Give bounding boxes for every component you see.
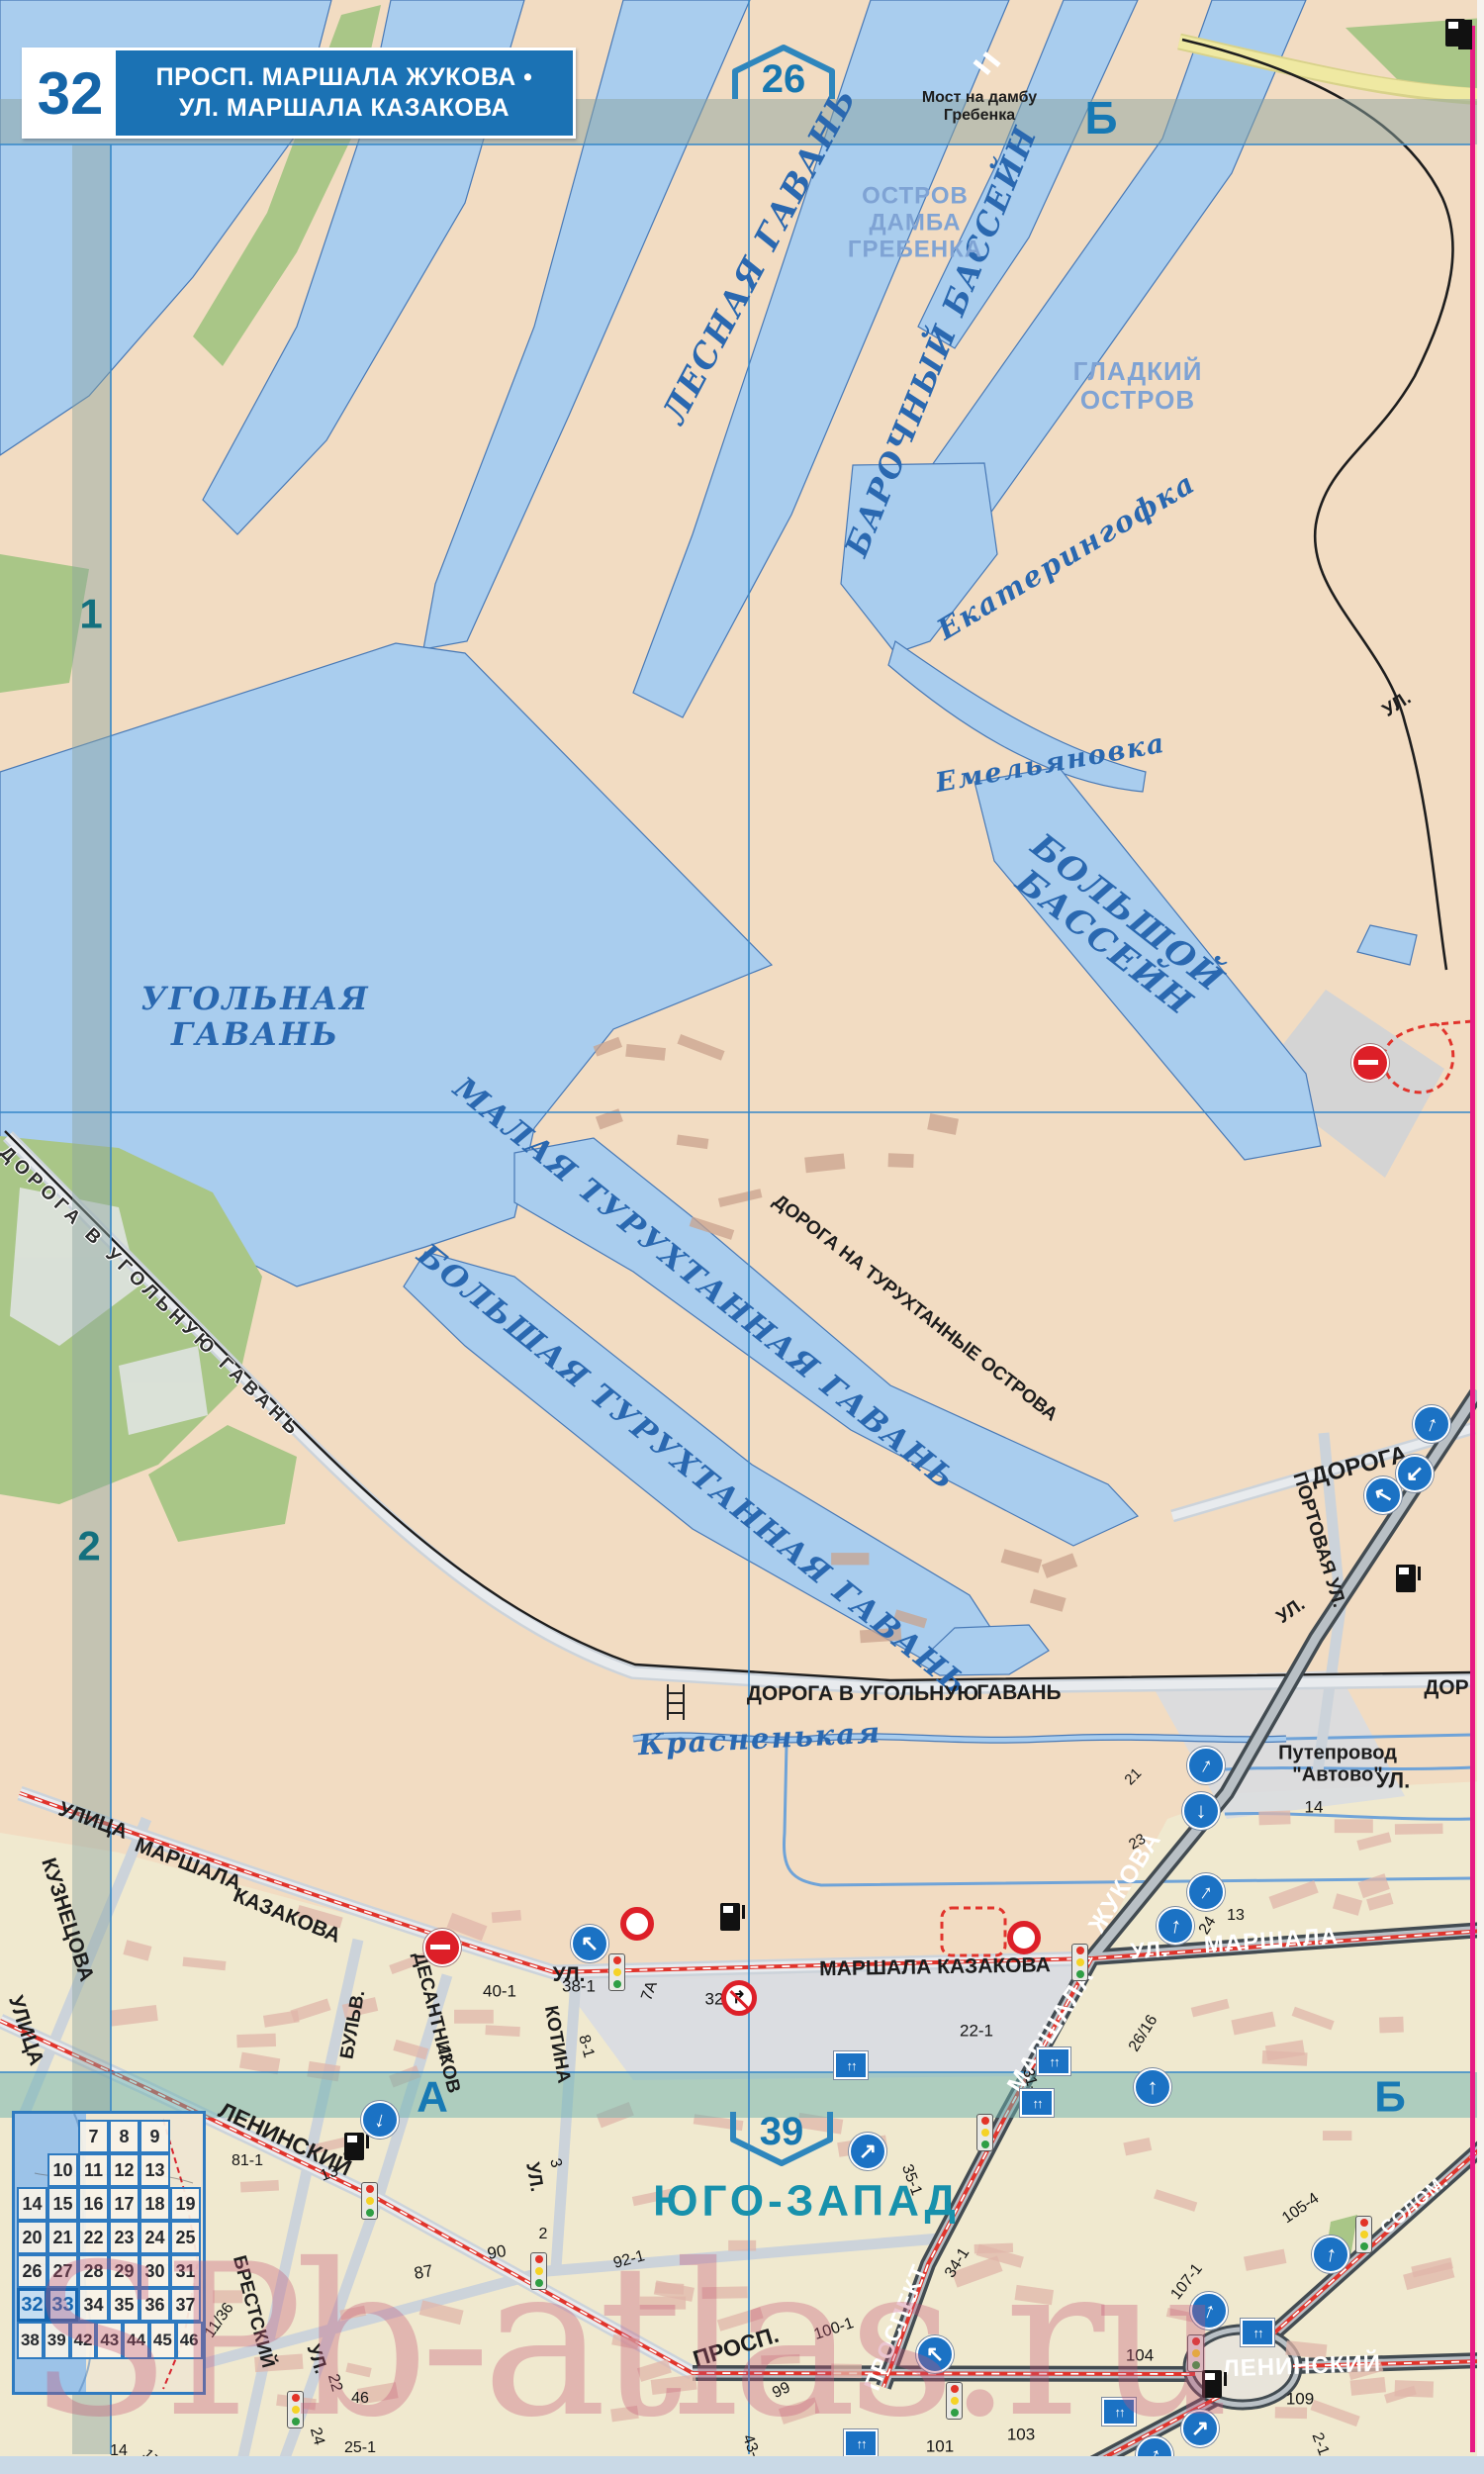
- road-sign-direction-icon: ↓: [1182, 1792, 1220, 1830]
- index-cell-9: 9: [139, 2120, 170, 2153]
- lane-sign-icon: ↑↑: [834, 2051, 868, 2079]
- prohibition-sign-icon: [620, 1907, 654, 1941]
- cut-gas-station-icon: [1458, 20, 1472, 49]
- page-title-line2: УЛ. МАРШАЛА КАЗАКОВА: [179, 93, 510, 124]
- road-sign-direction-icon: ↖: [571, 1925, 608, 1962]
- index-cell-empty: [170, 2120, 201, 2153]
- road-sign-direction-icon: ↑: [1134, 2068, 1171, 2106]
- road-sign-direction-icon: ↖: [1364, 1476, 1402, 1514]
- index-cell-14: 14: [17, 2187, 47, 2221]
- page-link-number: 26: [727, 57, 840, 102]
- traffic-light-icon: [608, 1953, 625, 1991]
- road-sign-direction-icon: ↑: [1413, 1405, 1450, 1443]
- page-title-line1: ПРОСП. МАРШАЛА ЖУКОВА •: [156, 62, 533, 93]
- index-cell-7: 7: [78, 2120, 109, 2153]
- page-margin-right: [1477, 0, 1484, 2474]
- index-cell-19: 19: [170, 2187, 201, 2221]
- index-cell-18: 18: [139, 2187, 170, 2221]
- index-cell-10: 10: [47, 2153, 78, 2187]
- index-cell-empty: [17, 2120, 47, 2153]
- lane-sign-icon: ↑↑: [1037, 2047, 1070, 2075]
- page-edge-line: [1470, 26, 1475, 2452]
- road-sign-direction-icon: ↗: [849, 2133, 886, 2170]
- page-link-badge-up: 26: [727, 42, 840, 105]
- gas-station-icon: [720, 1903, 740, 1931]
- gas-station-icon: [344, 2133, 364, 2160]
- page-link-number: 39: [725, 2110, 838, 2154]
- road-sign-direction-icon: ↙: [1396, 1455, 1434, 1492]
- lane-sign-icon: ↑↑: [1020, 2089, 1054, 2117]
- page-link-badge-down: 39: [725, 2106, 838, 2169]
- map-canvas: [0, 0, 1484, 2474]
- road-sign-direction-icon: ↓: [361, 2101, 399, 2139]
- traffic-light-icon: [361, 2182, 378, 2220]
- prohibition-sign-icon: [1007, 1921, 1041, 1954]
- traffic-light-icon: [1071, 1944, 1088, 1981]
- gas-station-icon: [1396, 1565, 1416, 1592]
- page-margin-bottom: [0, 2456, 1484, 2474]
- page-title-block: 32 ПРОСП. МАРШАЛА ЖУКОВА • УЛ. МАРШАЛА К…: [22, 48, 576, 139]
- bridge-icon: [667, 1684, 685, 1720]
- no-turn-sign-icon: ↱: [721, 1980, 757, 2016]
- index-cell-empty: [17, 2153, 47, 2187]
- watermark: SPb-atlas.ru: [28, 2219, 1482, 2463]
- index-cell-17: 17: [109, 2187, 139, 2221]
- road-sign-direction-icon: ↑: [1187, 1873, 1225, 1911]
- index-cell-12: 12: [109, 2153, 139, 2187]
- atlas-map-page: ЛЕСНАЯ ГАВАНЬБАРОЧНЫЙ БАССЕЙНБОЛЬШОЙ БАС…: [0, 0, 1484, 2474]
- page-title: ПРОСП. МАРШАЛА ЖУКОВА • УЛ. МАРШАЛА КАЗА…: [116, 50, 573, 136]
- page-number: 32: [25, 50, 116, 136]
- index-cell-8: 8: [109, 2120, 139, 2153]
- index-cell-empty: [170, 2153, 201, 2187]
- index-cell-11: 11: [78, 2153, 109, 2187]
- no-entry-sign-icon: [423, 1929, 461, 1966]
- no-entry-sign-icon: [1351, 1044, 1389, 1082]
- road-sign-direction-icon: ↑: [1187, 1747, 1225, 1784]
- index-cell-15: 15: [47, 2187, 78, 2221]
- traffic-light-icon: [976, 2114, 993, 2151]
- road-sign-direction-icon: ↑: [1157, 1907, 1194, 1945]
- index-cell-empty: [47, 2120, 78, 2153]
- index-cell-13: 13: [139, 2153, 170, 2187]
- index-cell-16: 16: [78, 2187, 109, 2221]
